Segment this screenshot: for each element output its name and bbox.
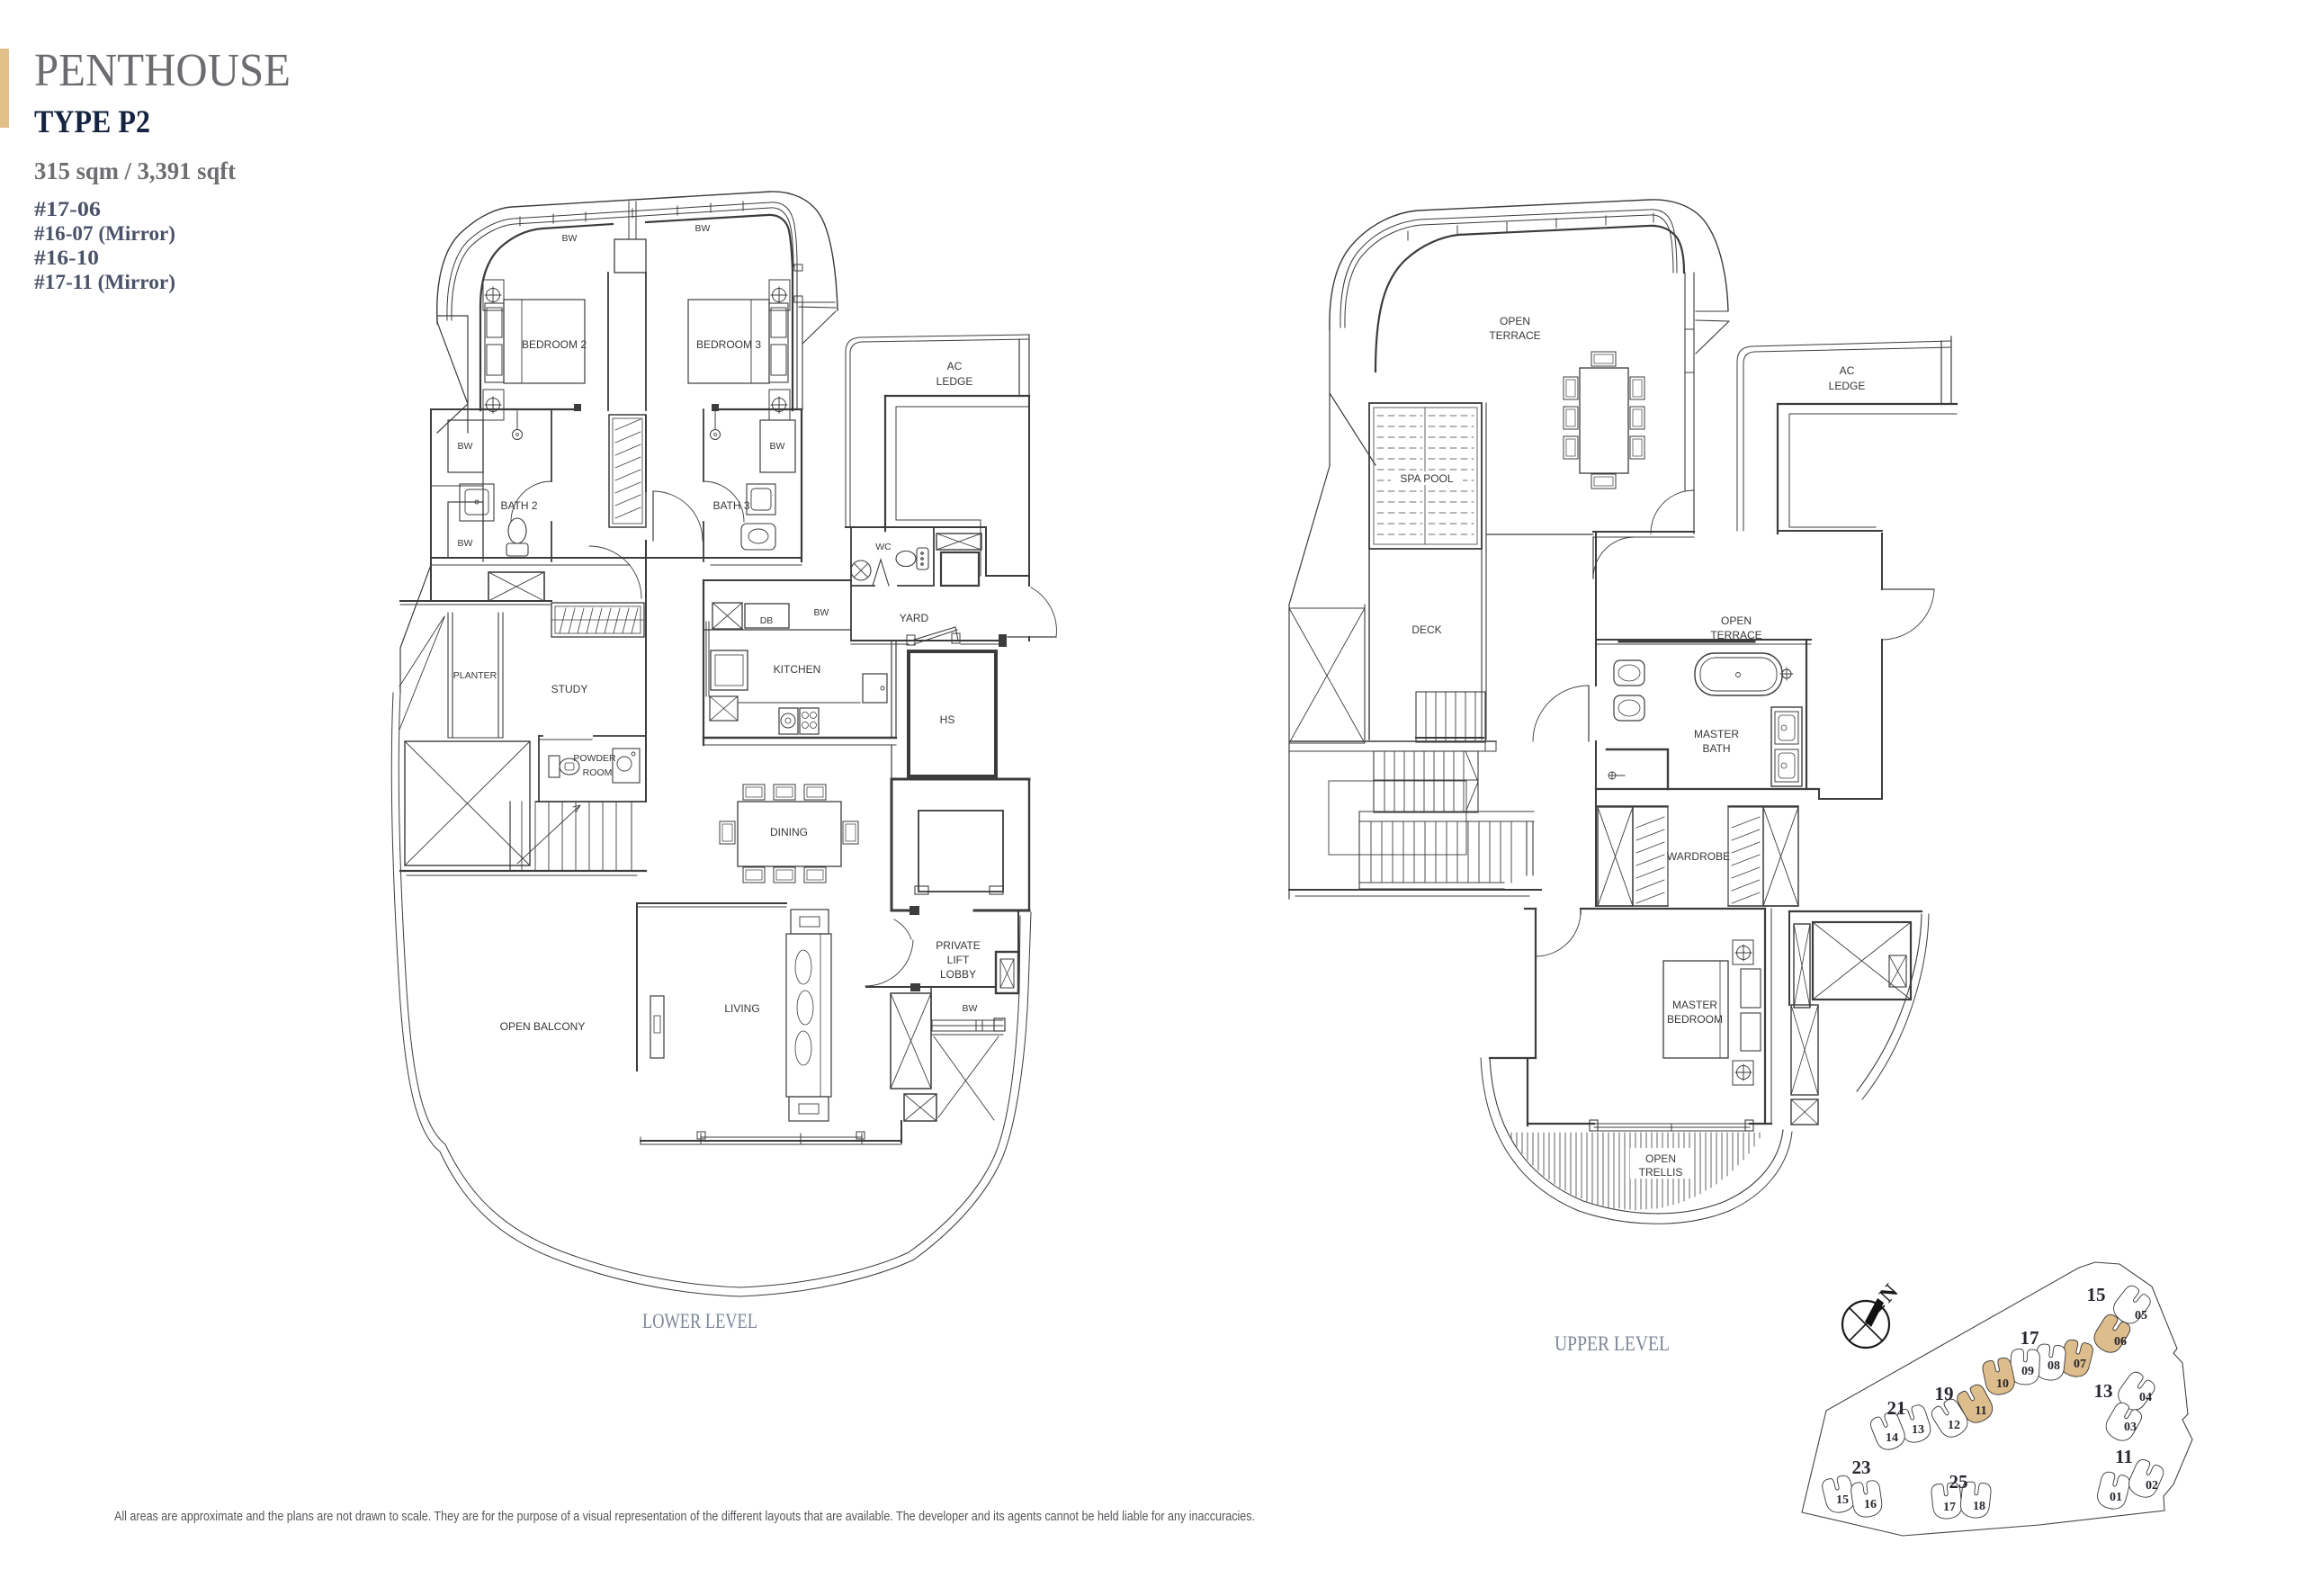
- svg-text:09: 09: [2021, 1365, 2034, 1378]
- svg-text:11: 11: [2115, 1446, 2133, 1467]
- svg-text:#17-06: #17-06: [34, 198, 101, 220]
- svg-text:WC: WC: [875, 542, 892, 552]
- svg-text:POWDER: POWDER: [573, 753, 616, 764]
- svg-text:UPPER LEVEL: UPPER LEVEL: [1555, 1332, 1670, 1355]
- svg-text:BATH: BATH: [1702, 742, 1730, 755]
- svg-text:AC: AC: [947, 360, 963, 372]
- svg-text:YARD: YARD: [900, 612, 929, 624]
- svg-text:LEDGE: LEDGE: [936, 375, 973, 388]
- svg-text:18: 18: [1973, 1500, 1985, 1513]
- svg-text:BEDROOM 3: BEDROOM 3: [696, 338, 761, 351]
- svg-text:AC: AC: [1840, 364, 1855, 377]
- svg-text:KITCHEN: KITCHEN: [774, 663, 821, 676]
- svg-text:13: 13: [1912, 1423, 1924, 1437]
- svg-text:OPEN: OPEN: [1500, 315, 1530, 327]
- svg-text:OPEN: OPEN: [1645, 1152, 1676, 1165]
- svg-text:BEDROOM 2: BEDROOM 2: [522, 338, 587, 351]
- svg-text:BW: BW: [770, 441, 785, 452]
- svg-text:BW: BW: [695, 223, 711, 234]
- svg-text:OPEN: OPEN: [1721, 614, 1752, 627]
- svg-text:#16-10: #16-10: [34, 247, 99, 269]
- svg-text:02: 02: [2146, 1479, 2158, 1493]
- svg-text:BW: BW: [458, 441, 473, 452]
- svg-text:BATH 2: BATH 2: [500, 499, 537, 512]
- svg-text:TERRACE: TERRACE: [1710, 629, 1761, 641]
- svg-text:BATH 3: BATH 3: [712, 499, 749, 512]
- svg-text:TRELLIS: TRELLIS: [1639, 1166, 1683, 1179]
- svg-text:MASTER: MASTER: [1672, 999, 1717, 1011]
- svg-text:315 sqm / 3,391 sqft: 315 sqm / 3,391 sqft: [34, 157, 236, 184]
- svg-text:08: 08: [2048, 1359, 2060, 1373]
- svg-text:DB: DB: [760, 615, 774, 626]
- svg-text:ROOM: ROOM: [583, 767, 613, 778]
- svg-text:TERRACE: TERRACE: [1489, 329, 1540, 342]
- svg-text:14: 14: [1886, 1431, 1898, 1445]
- svg-text:DINING: DINING: [770, 826, 808, 838]
- svg-text:LOBBY: LOBBY: [940, 968, 976, 981]
- svg-text:BW: BW: [814, 607, 829, 618]
- svg-text:16: 16: [1864, 1498, 1877, 1511]
- svg-text:25: 25: [1949, 1471, 1968, 1493]
- svg-text:BW: BW: [458, 538, 473, 549]
- svg-text:10: 10: [1996, 1377, 2009, 1391]
- svg-text:23: 23: [1852, 1457, 1871, 1478]
- svg-text:PRIVATE: PRIVATE: [936, 939, 981, 952]
- svg-text:19: 19: [1935, 1383, 1954, 1404]
- svg-text:17: 17: [1943, 1501, 1956, 1514]
- svg-text:15: 15: [1836, 1493, 1849, 1507]
- svg-text:LEDGE: LEDGE: [1829, 380, 1866, 392]
- svg-text:LIVING: LIVING: [724, 1002, 759, 1015]
- svg-text:SPA POOL: SPA POOL: [1400, 472, 1453, 485]
- svg-text:21: 21: [1887, 1397, 1906, 1419]
- svg-text:LIFT: LIFT: [947, 954, 970, 966]
- svg-text:MASTER: MASTER: [1694, 728, 1739, 740]
- svg-text:01: 01: [2110, 1491, 2122, 1504]
- svg-text:04: 04: [2139, 1391, 2152, 1404]
- svg-text:BW: BW: [963, 1003, 978, 1014]
- svg-text:PLANTER: PLANTER: [453, 670, 497, 681]
- svg-text:06: 06: [2114, 1335, 2127, 1349]
- svg-text:#17-11 (Mirror): #17-11 (Mirror): [34, 271, 175, 293]
- svg-text:DECK: DECK: [1411, 623, 1441, 636]
- svg-text:BW: BW: [562, 233, 578, 244]
- svg-text:TYPE P2: TYPE P2: [34, 103, 150, 139]
- svg-text:BEDROOM: BEDROOM: [1667, 1013, 1723, 1026]
- svg-text:17: 17: [2021, 1327, 2039, 1349]
- svg-text:03: 03: [2124, 1421, 2137, 1434]
- svg-text:15: 15: [2087, 1284, 2106, 1305]
- svg-text:07: 07: [2074, 1358, 2086, 1371]
- svg-text:All areas are approximate and: All areas are approximate and the plans …: [114, 1509, 1255, 1524]
- svg-text:OPEN BALCONY: OPEN BALCONY: [500, 1020, 586, 1033]
- svg-text:#16-07 (Mirror): #16-07 (Mirror): [34, 222, 175, 245]
- svg-text:LOWER LEVEL: LOWER LEVEL: [642, 1310, 757, 1332]
- svg-text:05: 05: [2135, 1309, 2147, 1323]
- svg-text:HS: HS: [940, 713, 955, 726]
- svg-text:STUDY: STUDY: [551, 683, 588, 695]
- svg-text:12: 12: [1948, 1419, 1960, 1432]
- svg-text:PENTHOUSE: PENTHOUSE: [34, 45, 291, 96]
- svg-text:11: 11: [1975, 1404, 1986, 1418]
- svg-text:13: 13: [2094, 1380, 2113, 1402]
- svg-text:WARDROBE: WARDROBE: [1667, 850, 1730, 863]
